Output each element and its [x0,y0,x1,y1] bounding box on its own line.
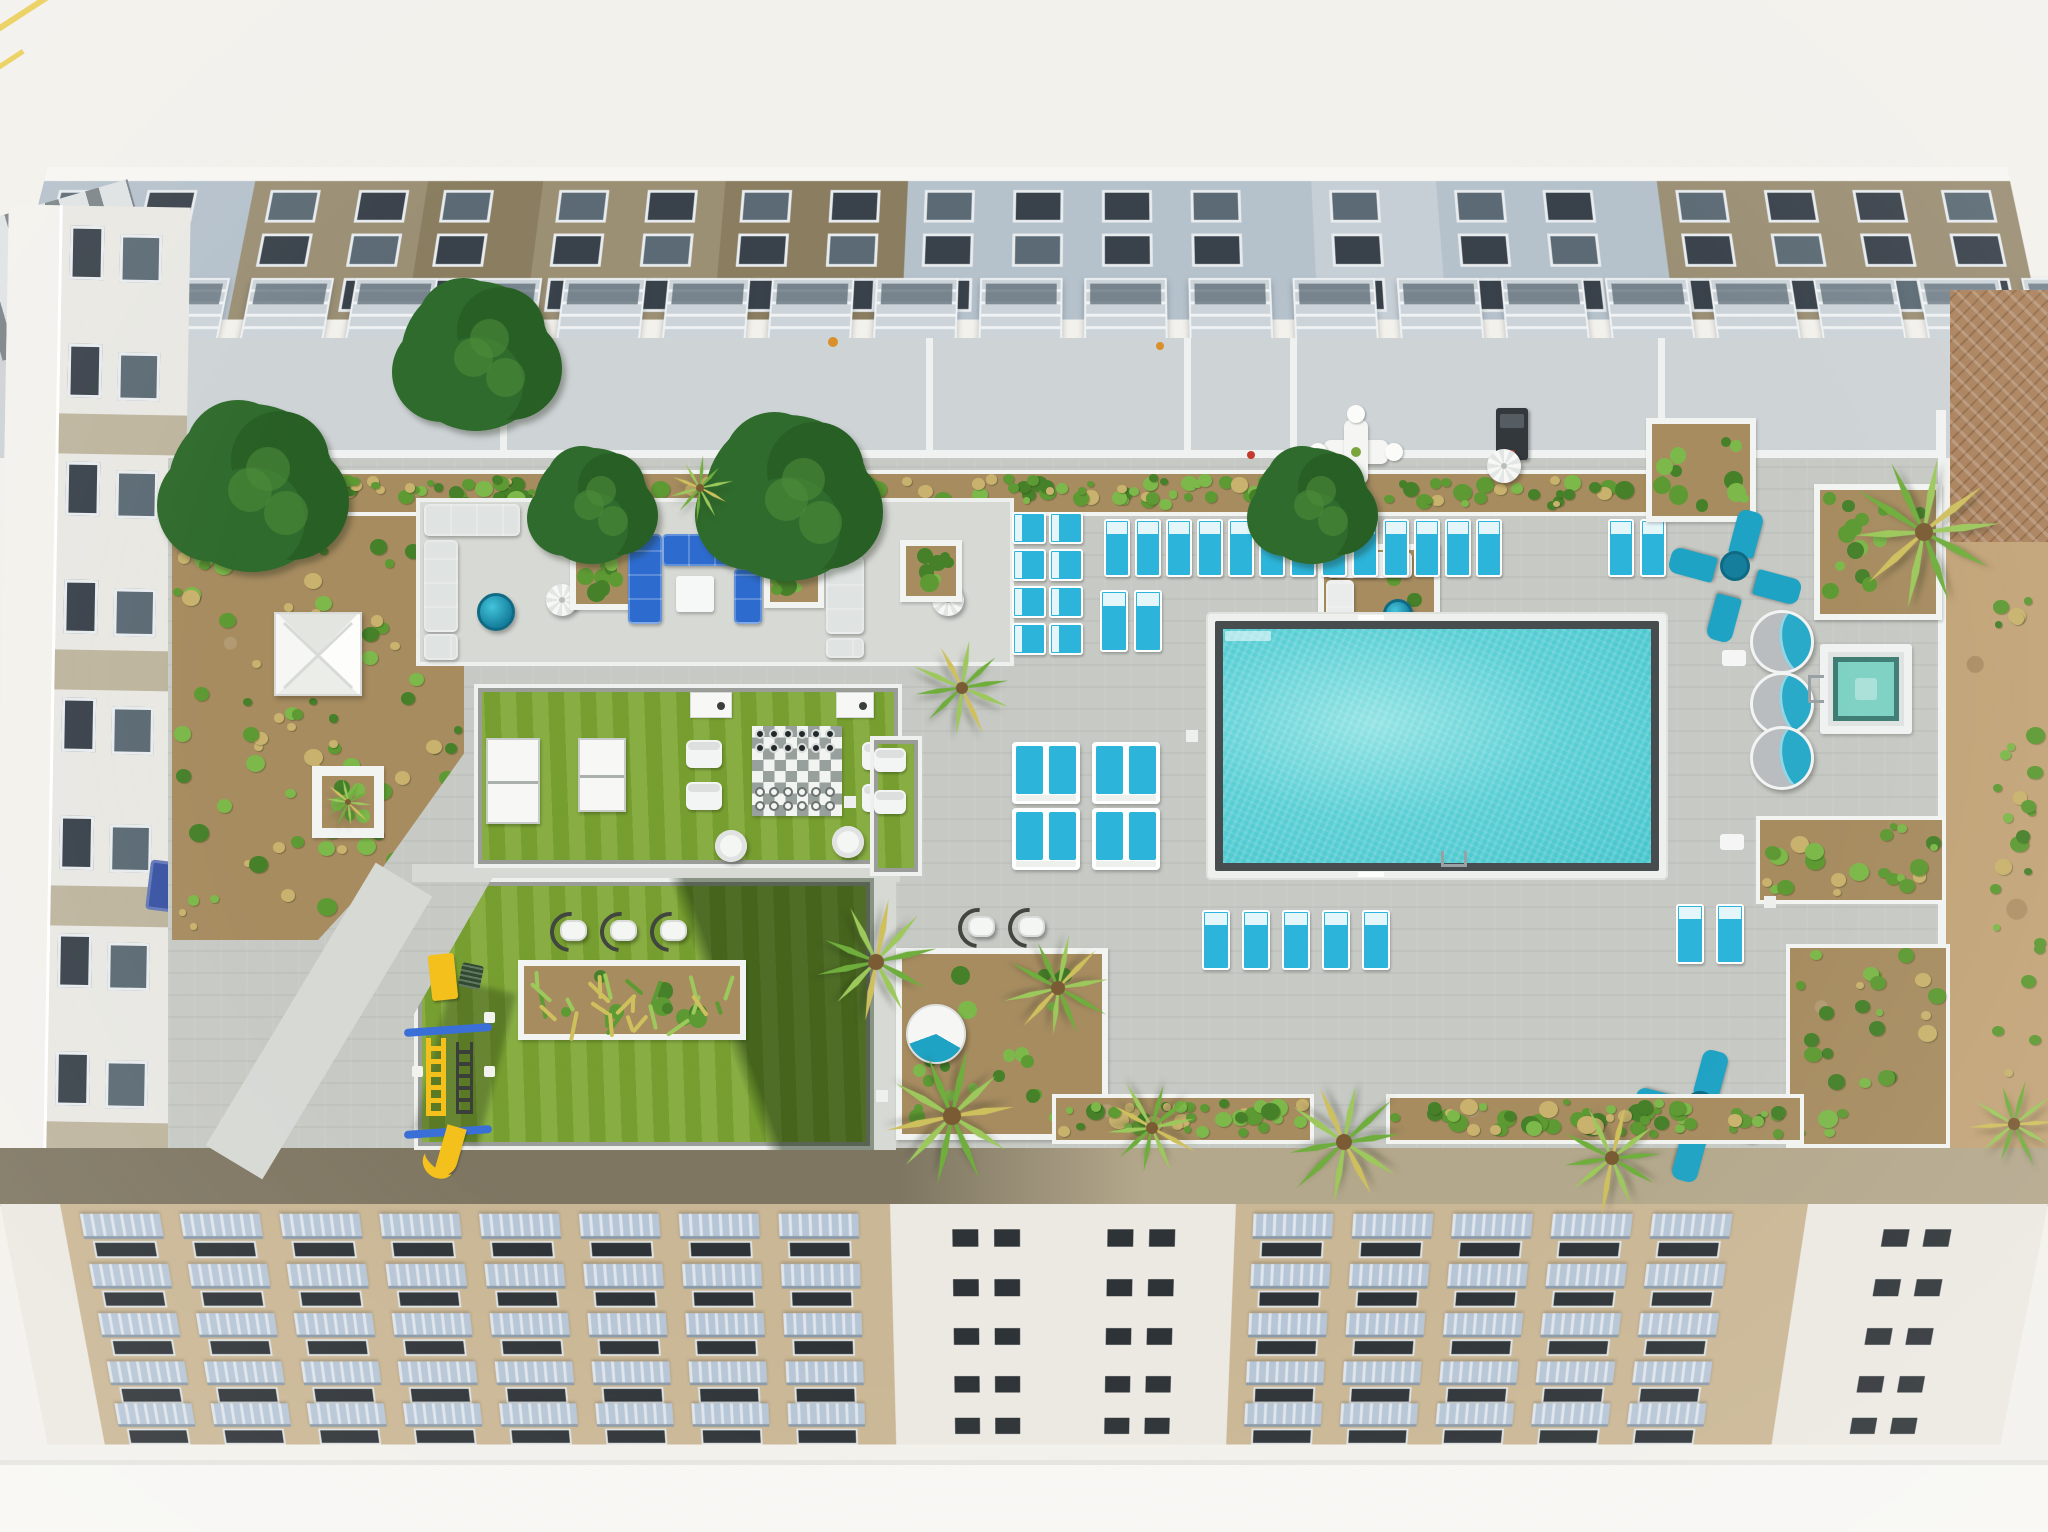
aerial-courtyard-photo [0,0,2048,1532]
photo-haze [0,0,2048,1532]
